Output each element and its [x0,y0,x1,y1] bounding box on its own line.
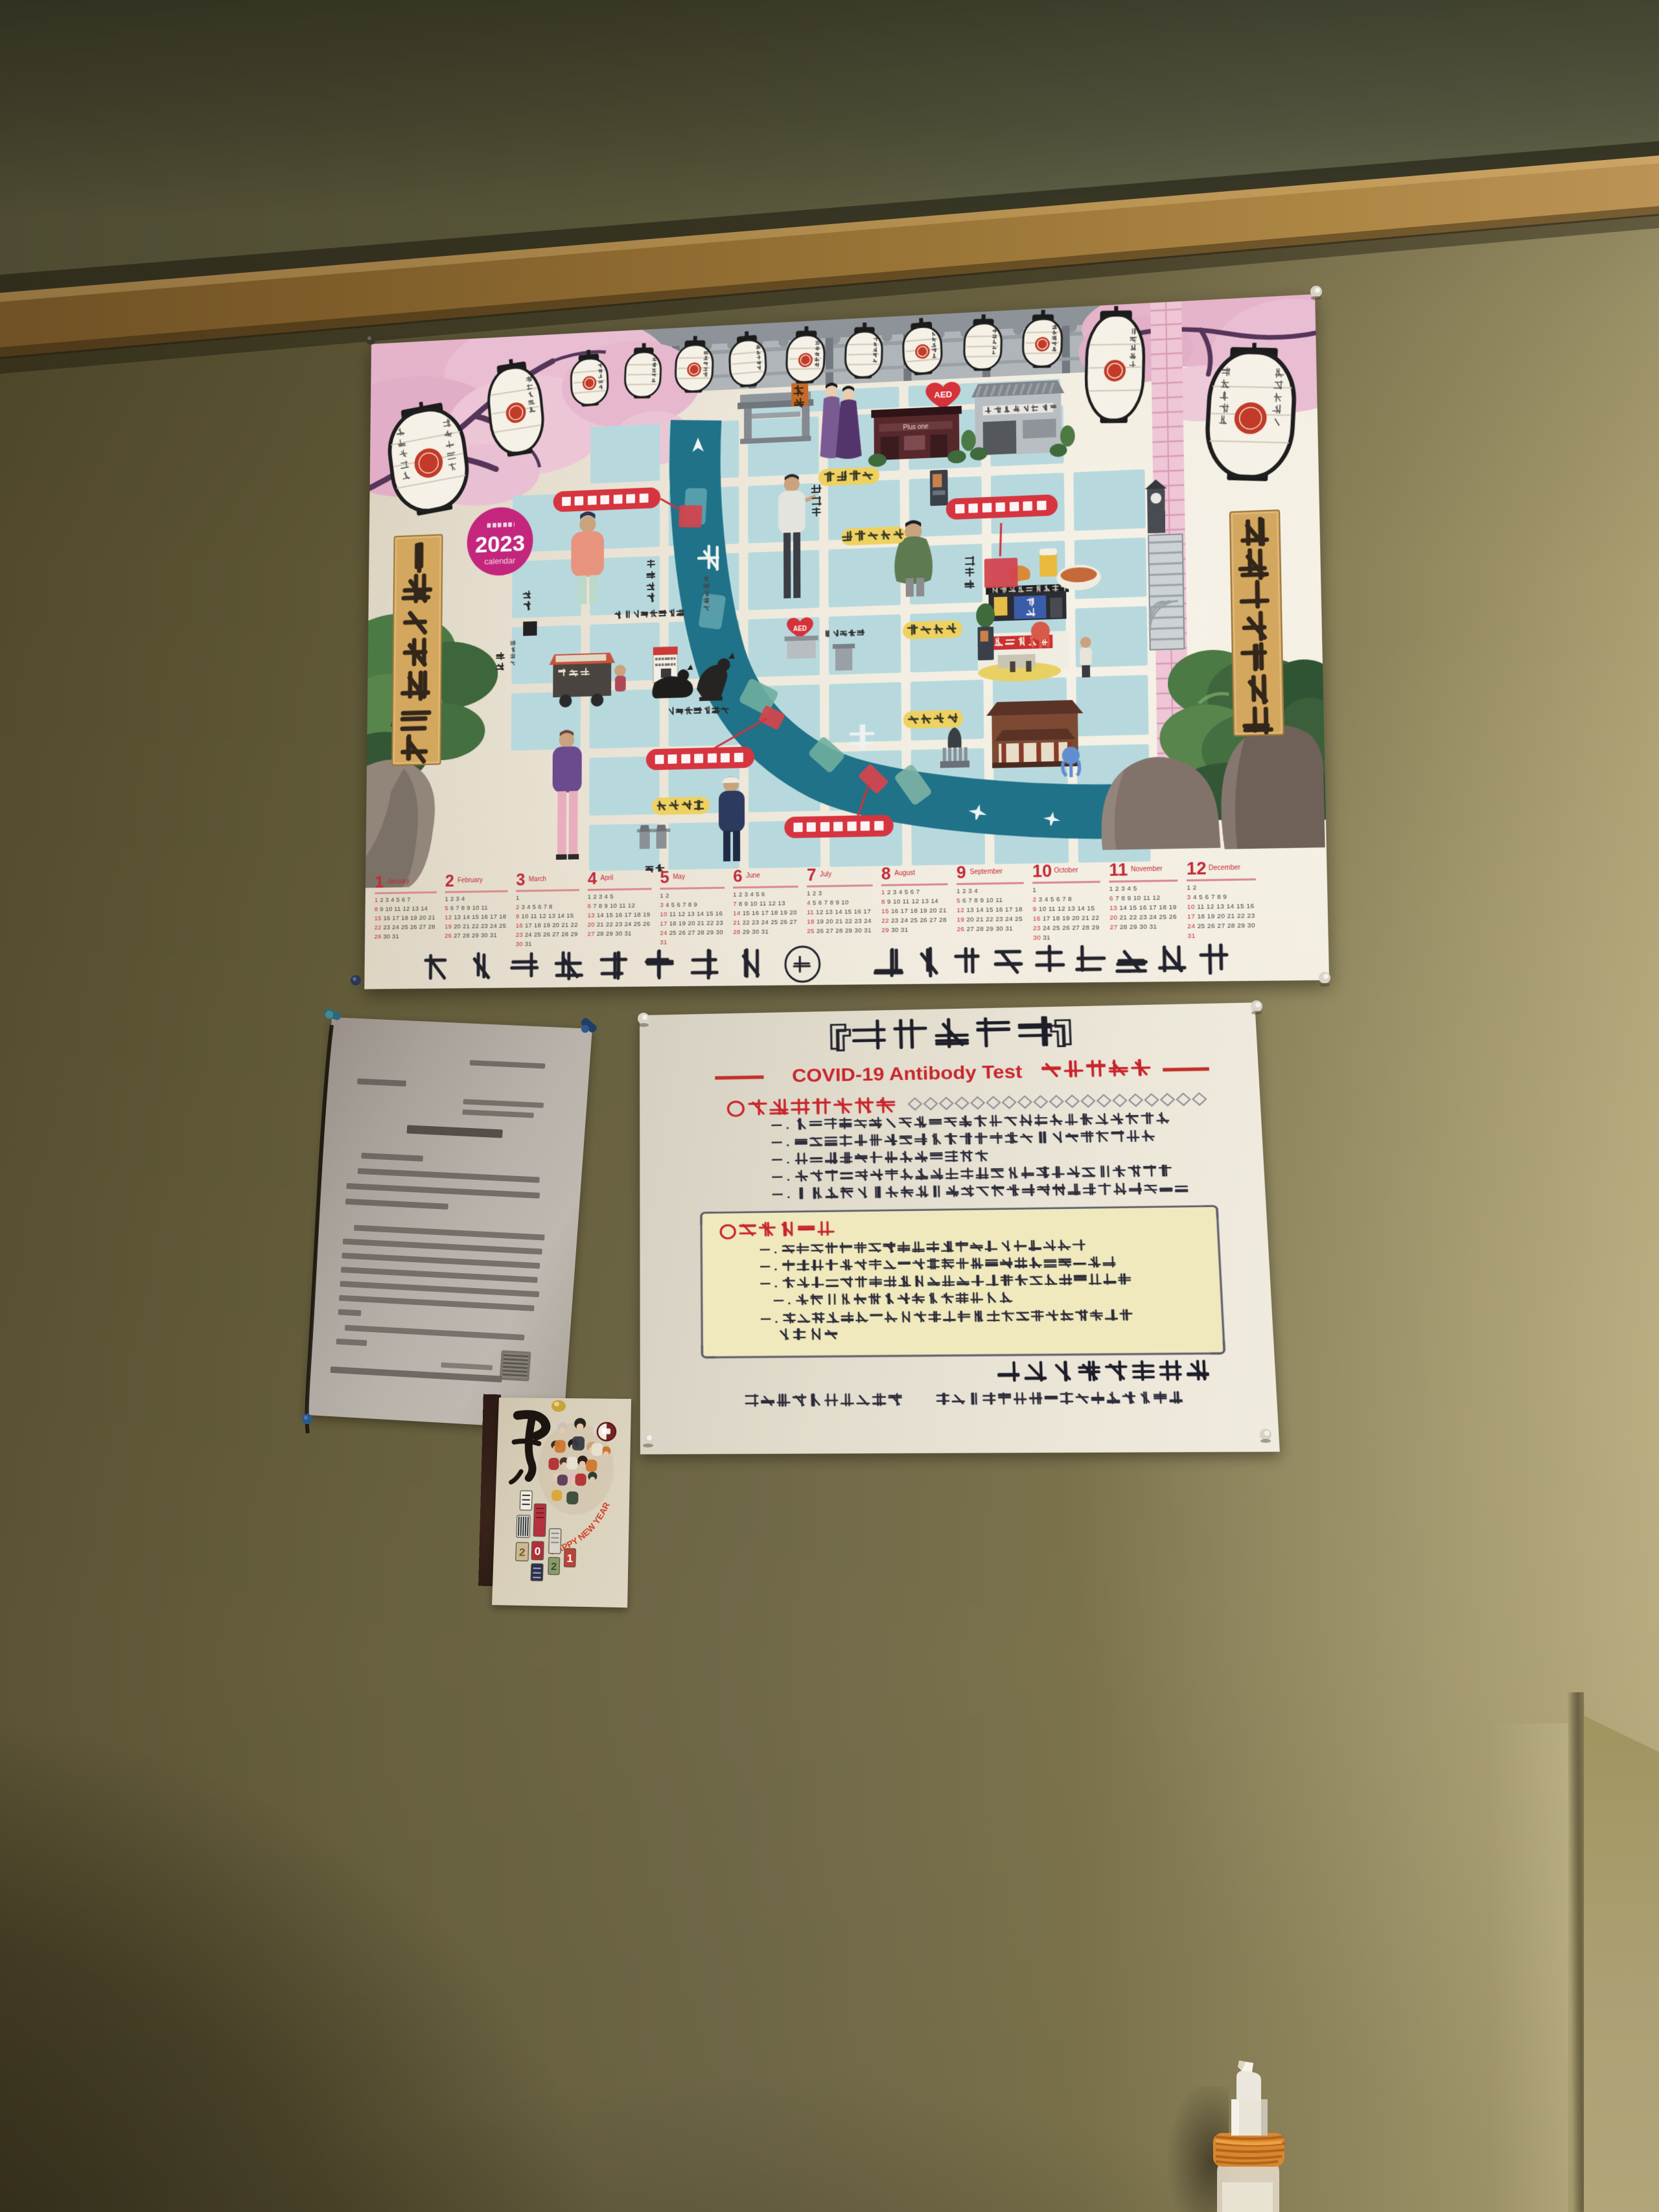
svg-text:0: 0 [534,1545,540,1558]
svg-text:2: 2 [551,1561,557,1573]
svg-text:COVID-19 Antibody Test: COVID-19 Antibody Test [792,1061,1023,1086]
svg-text:2: 2 [519,1547,526,1559]
svg-text:1: 1 [566,1552,574,1565]
